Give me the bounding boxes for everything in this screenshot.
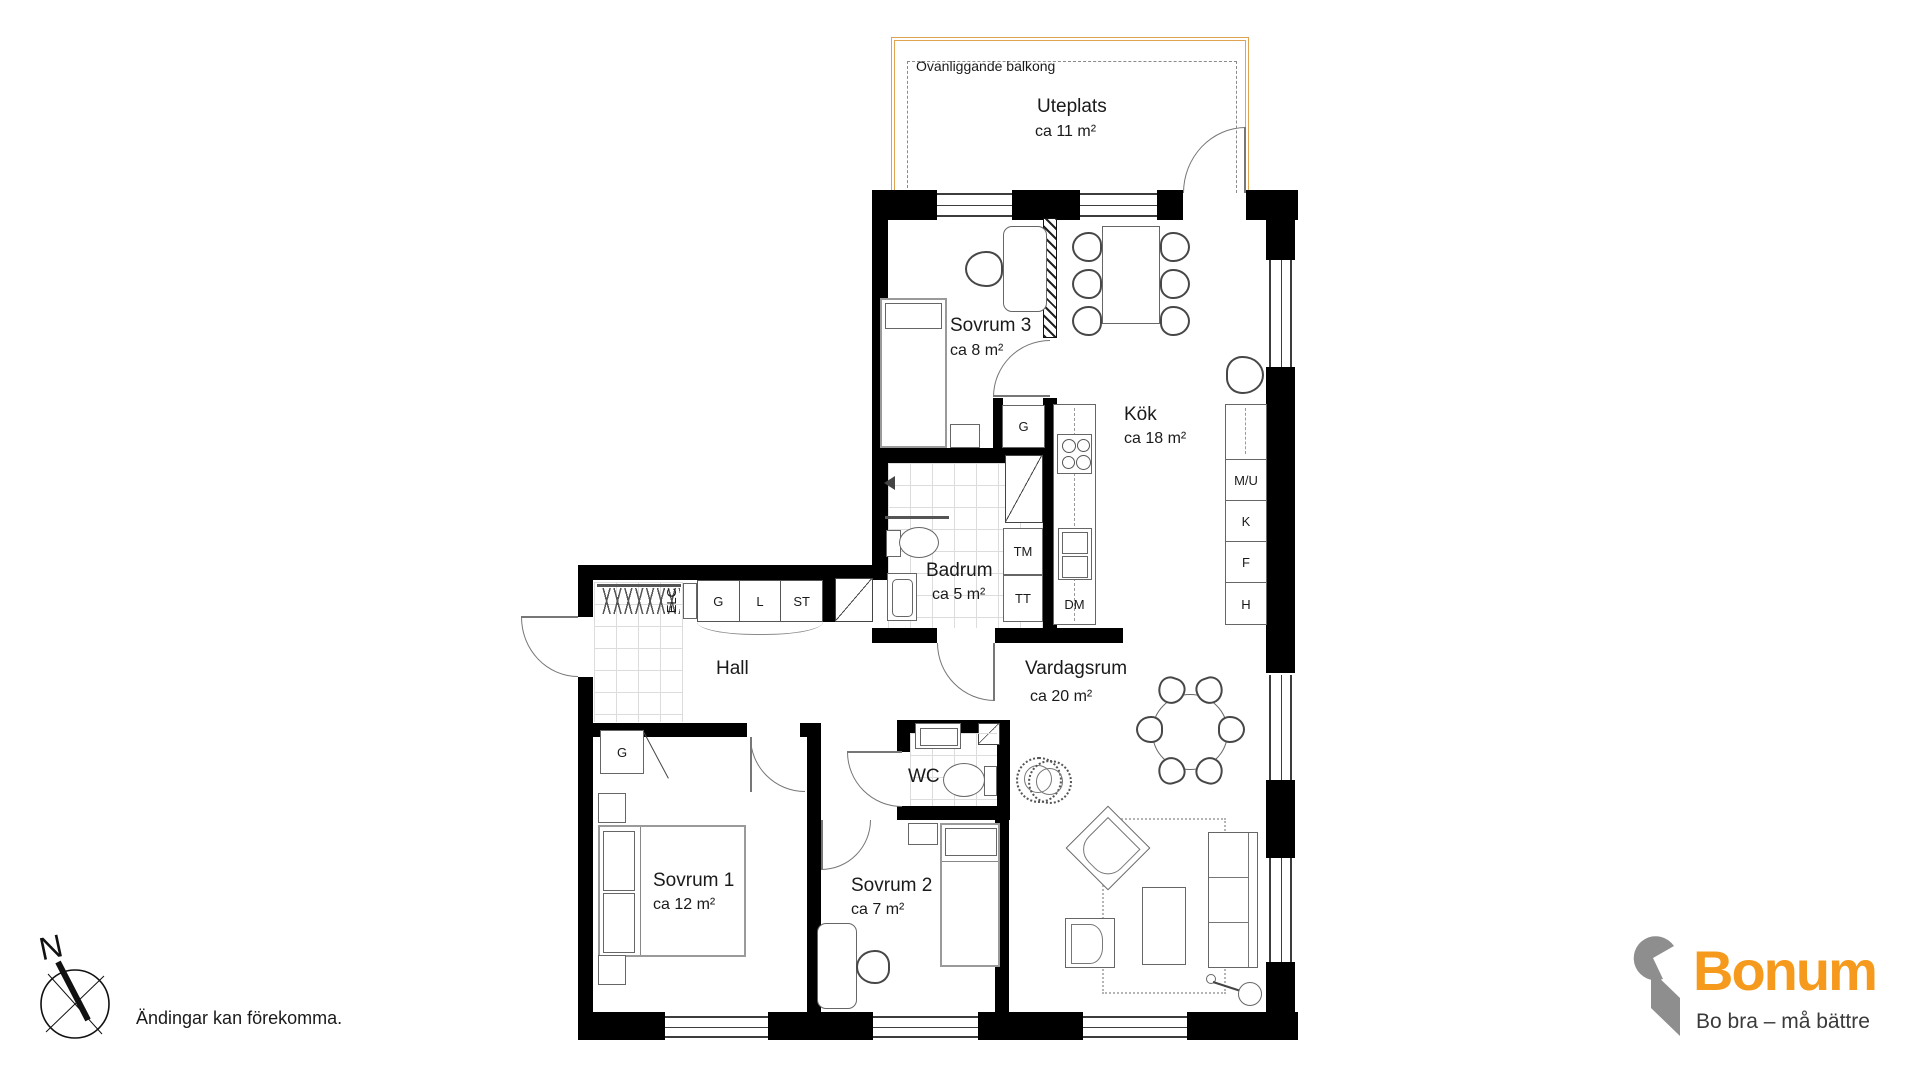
window xyxy=(1080,193,1157,217)
sofa-cushion-line xyxy=(1209,877,1249,878)
lounge-armchair xyxy=(1065,918,1115,968)
pillow xyxy=(603,831,635,891)
blanket-line xyxy=(942,861,998,862)
wc-toilet-bowl xyxy=(943,763,985,797)
wc-door-leaf xyxy=(847,751,902,753)
fridge-cell: K xyxy=(1225,500,1267,541)
floor-lamp xyxy=(1238,982,1262,1006)
sink-basin xyxy=(920,728,958,746)
pillow xyxy=(945,828,997,856)
towel-rail xyxy=(885,516,949,519)
balcony-door-leaf xyxy=(1244,127,1246,193)
hall-closet-row: G L ST xyxy=(697,580,823,622)
freezer-cell: F xyxy=(1225,541,1267,582)
sofa-backrest-line xyxy=(1248,833,1249,967)
badrum-door-arc xyxy=(937,643,995,701)
wall xyxy=(1157,190,1183,220)
entry-door-arc xyxy=(521,617,578,677)
sovrum3-label: Sovrum 3 xyxy=(950,315,1031,337)
desk-chair xyxy=(856,950,890,984)
window xyxy=(873,1016,978,1038)
closet-open-door-line xyxy=(644,732,669,778)
sovrum1-door-arc xyxy=(750,737,805,792)
badrum-label: Badrum xyxy=(926,560,993,582)
dishwasher-label: DM xyxy=(1053,592,1096,616)
dining-chair xyxy=(1072,232,1102,262)
compass-crossline xyxy=(48,974,102,1034)
sovrum2-area: ca 7 m² xyxy=(851,901,904,919)
dining-chair xyxy=(1160,306,1190,336)
stove xyxy=(1057,434,1092,474)
tumble-dryer-label: TT xyxy=(1003,575,1043,622)
cabinet-centerline xyxy=(1245,408,1246,454)
wc-sink xyxy=(915,723,961,749)
wall xyxy=(1246,190,1298,220)
wall xyxy=(1012,190,1080,220)
wall xyxy=(1187,1012,1298,1040)
shower-head-icon xyxy=(884,476,895,490)
sovrum2-door-arc xyxy=(821,820,871,870)
pantry-cell: H xyxy=(1225,582,1267,625)
floorplan-canvas: Ovanliggande balkong Uteplats ca 11 m² xyxy=(0,0,1920,1080)
shaft-box xyxy=(835,578,873,622)
closet-g: G xyxy=(697,580,740,622)
compass-icon: N xyxy=(30,928,120,1048)
badrum-door-leaf xyxy=(993,643,995,701)
burner xyxy=(1062,456,1075,469)
hall-label: Hall xyxy=(716,658,749,680)
bonum-tagline: Bo bra – må bättre xyxy=(1696,1010,1870,1034)
uteplats-label: Uteplats xyxy=(1037,96,1107,118)
closet-st: ST xyxy=(781,580,823,622)
wall xyxy=(1266,220,1295,260)
window xyxy=(1269,675,1292,780)
dining-chair xyxy=(1072,269,1102,299)
coat-rack-rail xyxy=(597,584,681,587)
entry-door-leaf xyxy=(521,616,578,618)
round-table-chair xyxy=(1218,716,1245,743)
plant-icon xyxy=(1028,760,1072,804)
kok-label: Kök xyxy=(1124,404,1157,426)
wall xyxy=(823,578,835,622)
round-table-chair xyxy=(1136,716,1163,743)
elc-label: ELC xyxy=(664,588,679,613)
wall xyxy=(897,806,1010,820)
wall xyxy=(872,628,937,643)
wc-label: WC xyxy=(908,766,940,788)
dining-chair xyxy=(1160,269,1190,299)
single-bed-sovrum2 xyxy=(940,823,1000,967)
uteplats-area: ca 11 m² xyxy=(1035,123,1096,141)
wall xyxy=(768,1012,873,1040)
bonum-logo: Bonum Bo bra – må bättre xyxy=(1627,930,1907,1050)
sovrum3-door-leaf xyxy=(993,395,1050,397)
bonum-logo-icon xyxy=(1627,936,1689,1040)
compass-north-label: N xyxy=(36,928,66,967)
sink-basin xyxy=(1062,556,1088,578)
small-table xyxy=(908,823,938,845)
toilet-bowl xyxy=(899,527,939,558)
wall xyxy=(897,720,910,752)
bathroom-sink xyxy=(887,573,917,621)
sovrum2-door-leaf xyxy=(821,820,823,870)
wall xyxy=(978,1012,1083,1040)
nightstand xyxy=(950,424,980,448)
disclaimer-text: Ändingar kan förekomma. xyxy=(136,1008,342,1029)
shower-cabin xyxy=(1005,455,1043,523)
kitchen-sink xyxy=(1058,528,1092,580)
sink-basin xyxy=(1062,532,1088,554)
dining-chair xyxy=(1160,232,1190,262)
blanket-line xyxy=(640,827,641,955)
vardagsrum-label: Vardagsrum xyxy=(1025,658,1127,680)
desk-chair xyxy=(965,251,1003,287)
sink-basin xyxy=(892,579,913,617)
wall xyxy=(1266,780,1295,858)
closet-sovrum3-label: G xyxy=(1002,405,1045,448)
sofa-cushion-line xyxy=(1209,922,1249,923)
sovrum1-area: ca 12 m² xyxy=(653,896,715,914)
nightstand xyxy=(598,793,626,823)
wall xyxy=(995,628,1123,643)
overhead-balcony-label: Ovanliggande balkong xyxy=(916,58,1055,74)
sovrum1-label: Sovrum 1 xyxy=(653,870,734,892)
desk-sovrum3 xyxy=(1003,226,1047,312)
wc-toilet-tank xyxy=(984,766,997,796)
washing-machine-label: TM xyxy=(1003,528,1043,575)
sovrum2-label: Sovrum 2 xyxy=(851,875,932,897)
bonum-wordmark: Bonum xyxy=(1693,938,1876,1003)
elc-cabinet-door xyxy=(683,583,697,619)
wall xyxy=(1266,367,1295,673)
wc-door-arc xyxy=(847,752,902,807)
window xyxy=(665,1016,768,1038)
closet-sovrum1-label: G xyxy=(600,730,644,774)
vardagsrum-area: ca 20 m² xyxy=(1030,688,1092,706)
sovrum3-area: ca 8 m² xyxy=(950,342,1003,360)
desk-sovrum2 xyxy=(817,923,857,1009)
coffee-table xyxy=(1142,887,1186,965)
wall xyxy=(578,565,593,617)
window xyxy=(1269,260,1292,367)
burner xyxy=(1077,439,1090,452)
wall xyxy=(578,677,593,1040)
dining-table xyxy=(1102,226,1160,324)
window xyxy=(1269,858,1292,962)
closet-front-curve xyxy=(697,622,823,635)
badrum-area: ca 5 m² xyxy=(932,586,985,604)
kitchen-armchair xyxy=(1226,356,1264,394)
window xyxy=(937,193,1012,217)
dining-chair xyxy=(1072,306,1102,336)
micro-oven-cell: M/U xyxy=(1225,459,1267,500)
pillow xyxy=(885,303,942,329)
kok-area: ca 18 m² xyxy=(1124,430,1186,448)
nightstand xyxy=(598,955,626,985)
burner xyxy=(1076,455,1091,470)
closet-l: L xyxy=(740,580,782,622)
sofa xyxy=(1208,832,1258,968)
sovrum1-door-leaf xyxy=(750,737,752,792)
logo-pennant xyxy=(1651,970,1680,1036)
armchair-seat xyxy=(1071,924,1103,964)
window xyxy=(1083,1016,1187,1038)
pillow xyxy=(603,893,635,953)
burner xyxy=(1062,439,1076,453)
compass: N xyxy=(30,928,120,1048)
